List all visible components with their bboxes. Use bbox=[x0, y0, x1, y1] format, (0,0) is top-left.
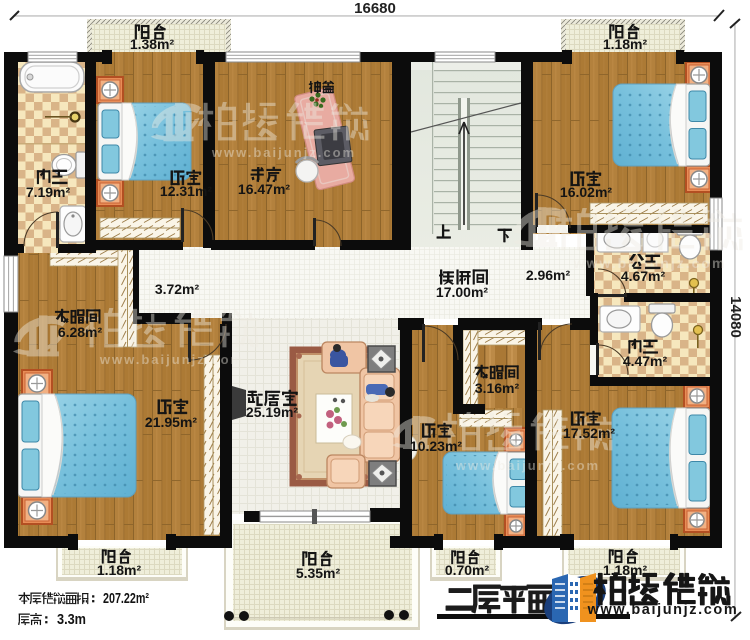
svg-text:25.19m²: 25.19m² bbox=[246, 404, 298, 420]
svg-text:4.67m²: 4.67m² bbox=[621, 268, 666, 284]
svg-text:5.35m²: 5.35m² bbox=[296, 565, 341, 581]
svg-text:207.22m²: 207.22m² bbox=[103, 591, 149, 607]
svg-text:1.18m²: 1.18m² bbox=[603, 562, 648, 578]
svg-text:6.28m²: 6.28m² bbox=[58, 324, 103, 340]
svg-text:1.18m²: 1.18m² bbox=[97, 562, 142, 578]
svg-text:3.16m²: 3.16m² bbox=[475, 380, 520, 396]
svg-text:17.52m²: 17.52m² bbox=[563, 425, 615, 441]
svg-text:14080: 14080 bbox=[727, 296, 744, 338]
svg-text:www.baijunjz.com: www.baijunjz.com bbox=[211, 145, 356, 160]
svg-text:www.baijunjz.com: www.baijunjz.com bbox=[455, 458, 600, 473]
svg-text:4.47m²: 4.47m² bbox=[623, 353, 668, 369]
svg-text:7.19m²: 7.19m² bbox=[26, 184, 71, 200]
svg-text:3.72m²: 3.72m² bbox=[155, 281, 200, 297]
svg-text:2.96m²: 2.96m² bbox=[526, 267, 571, 283]
svg-text:0.70m²: 0.70m² bbox=[445, 562, 490, 578]
svg-text:1.18m²: 1.18m² bbox=[603, 36, 648, 52]
svg-text:12.31m²: 12.31m² bbox=[160, 183, 212, 199]
svg-text:21.95m²: 21.95m² bbox=[145, 414, 197, 430]
svg-text:1.38m²: 1.38m² bbox=[130, 36, 175, 52]
svg-text:17.00m²: 17.00m² bbox=[436, 284, 488, 300]
svg-text:16680: 16680 bbox=[354, 0, 396, 17]
svg-text:16.02m²: 16.02m² bbox=[560, 184, 612, 200]
svg-text:16.47m²: 16.47m² bbox=[238, 181, 290, 197]
svg-text:10.23m²: 10.23m² bbox=[410, 438, 462, 454]
svg-text:www.baijunjz.com: www.baijunjz.com bbox=[587, 602, 739, 618]
svg-text:www.baijunjz.com: www.baijunjz.com bbox=[99, 352, 244, 367]
svg-text:3.3m: 3.3m bbox=[57, 612, 86, 628]
